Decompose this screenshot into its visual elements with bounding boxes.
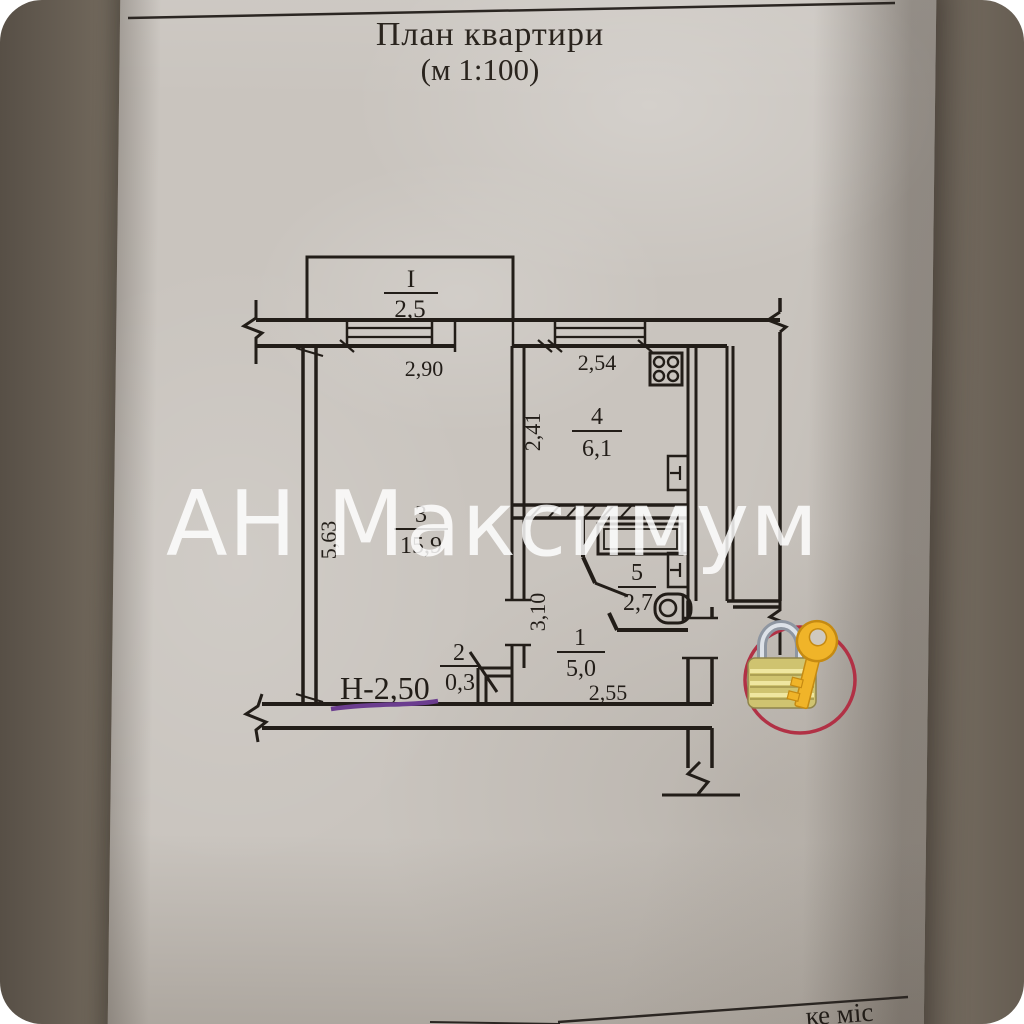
closet-area: 0,3 — [445, 670, 475, 696]
wall-break-topright-icon — [768, 312, 786, 332]
kitchen-area: 6,1 — [582, 436, 612, 462]
kitchen-number: 4 — [591, 404, 603, 430]
hallway-area: 5,0 — [566, 656, 596, 682]
ceiling-height-note: Н-2,50 — [340, 670, 430, 706]
screenshot-canvas: План квартири (м 1:100) — [0, 0, 1024, 1024]
bottom-wall — [262, 704, 712, 728]
wall-break-bottomleft-icon — [246, 694, 266, 742]
balcony-number: I — [407, 266, 415, 293]
hallway-right-wall — [688, 601, 712, 704]
photo-of-plan: План квартири (м 1:100) — [0, 0, 1024, 1024]
stairwell-wall — [727, 601, 780, 607]
hallway-number: 1 — [574, 625, 586, 651]
balcony-area: 2,5 — [394, 296, 425, 323]
dim-living-window: 2,90 — [405, 356, 444, 381]
dim-hallway-width: 2,55 — [589, 680, 628, 705]
footer-partial-text: ке міс — [805, 997, 875, 1024]
window-glazing-lines — [347, 328, 645, 337]
dim-hallway-depth: 3,10 — [525, 593, 550, 632]
bathroom-area: 2,7 — [623, 590, 653, 616]
wall-break-bottom-icon — [688, 762, 708, 794]
wall-break-left-icon — [244, 300, 262, 364]
header-rule-line — [128, 3, 895, 18]
closet-number: 2 — [453, 640, 465, 666]
dim-kitchen-window: 2,54 — [578, 350, 617, 375]
agency-watermark: АН Максимум — [166, 472, 819, 577]
entrance-door-jambs — [682, 618, 718, 658]
dim-kitchen-depth: 2,41 — [520, 413, 545, 452]
padlock-with-key-icon — [745, 617, 855, 733]
